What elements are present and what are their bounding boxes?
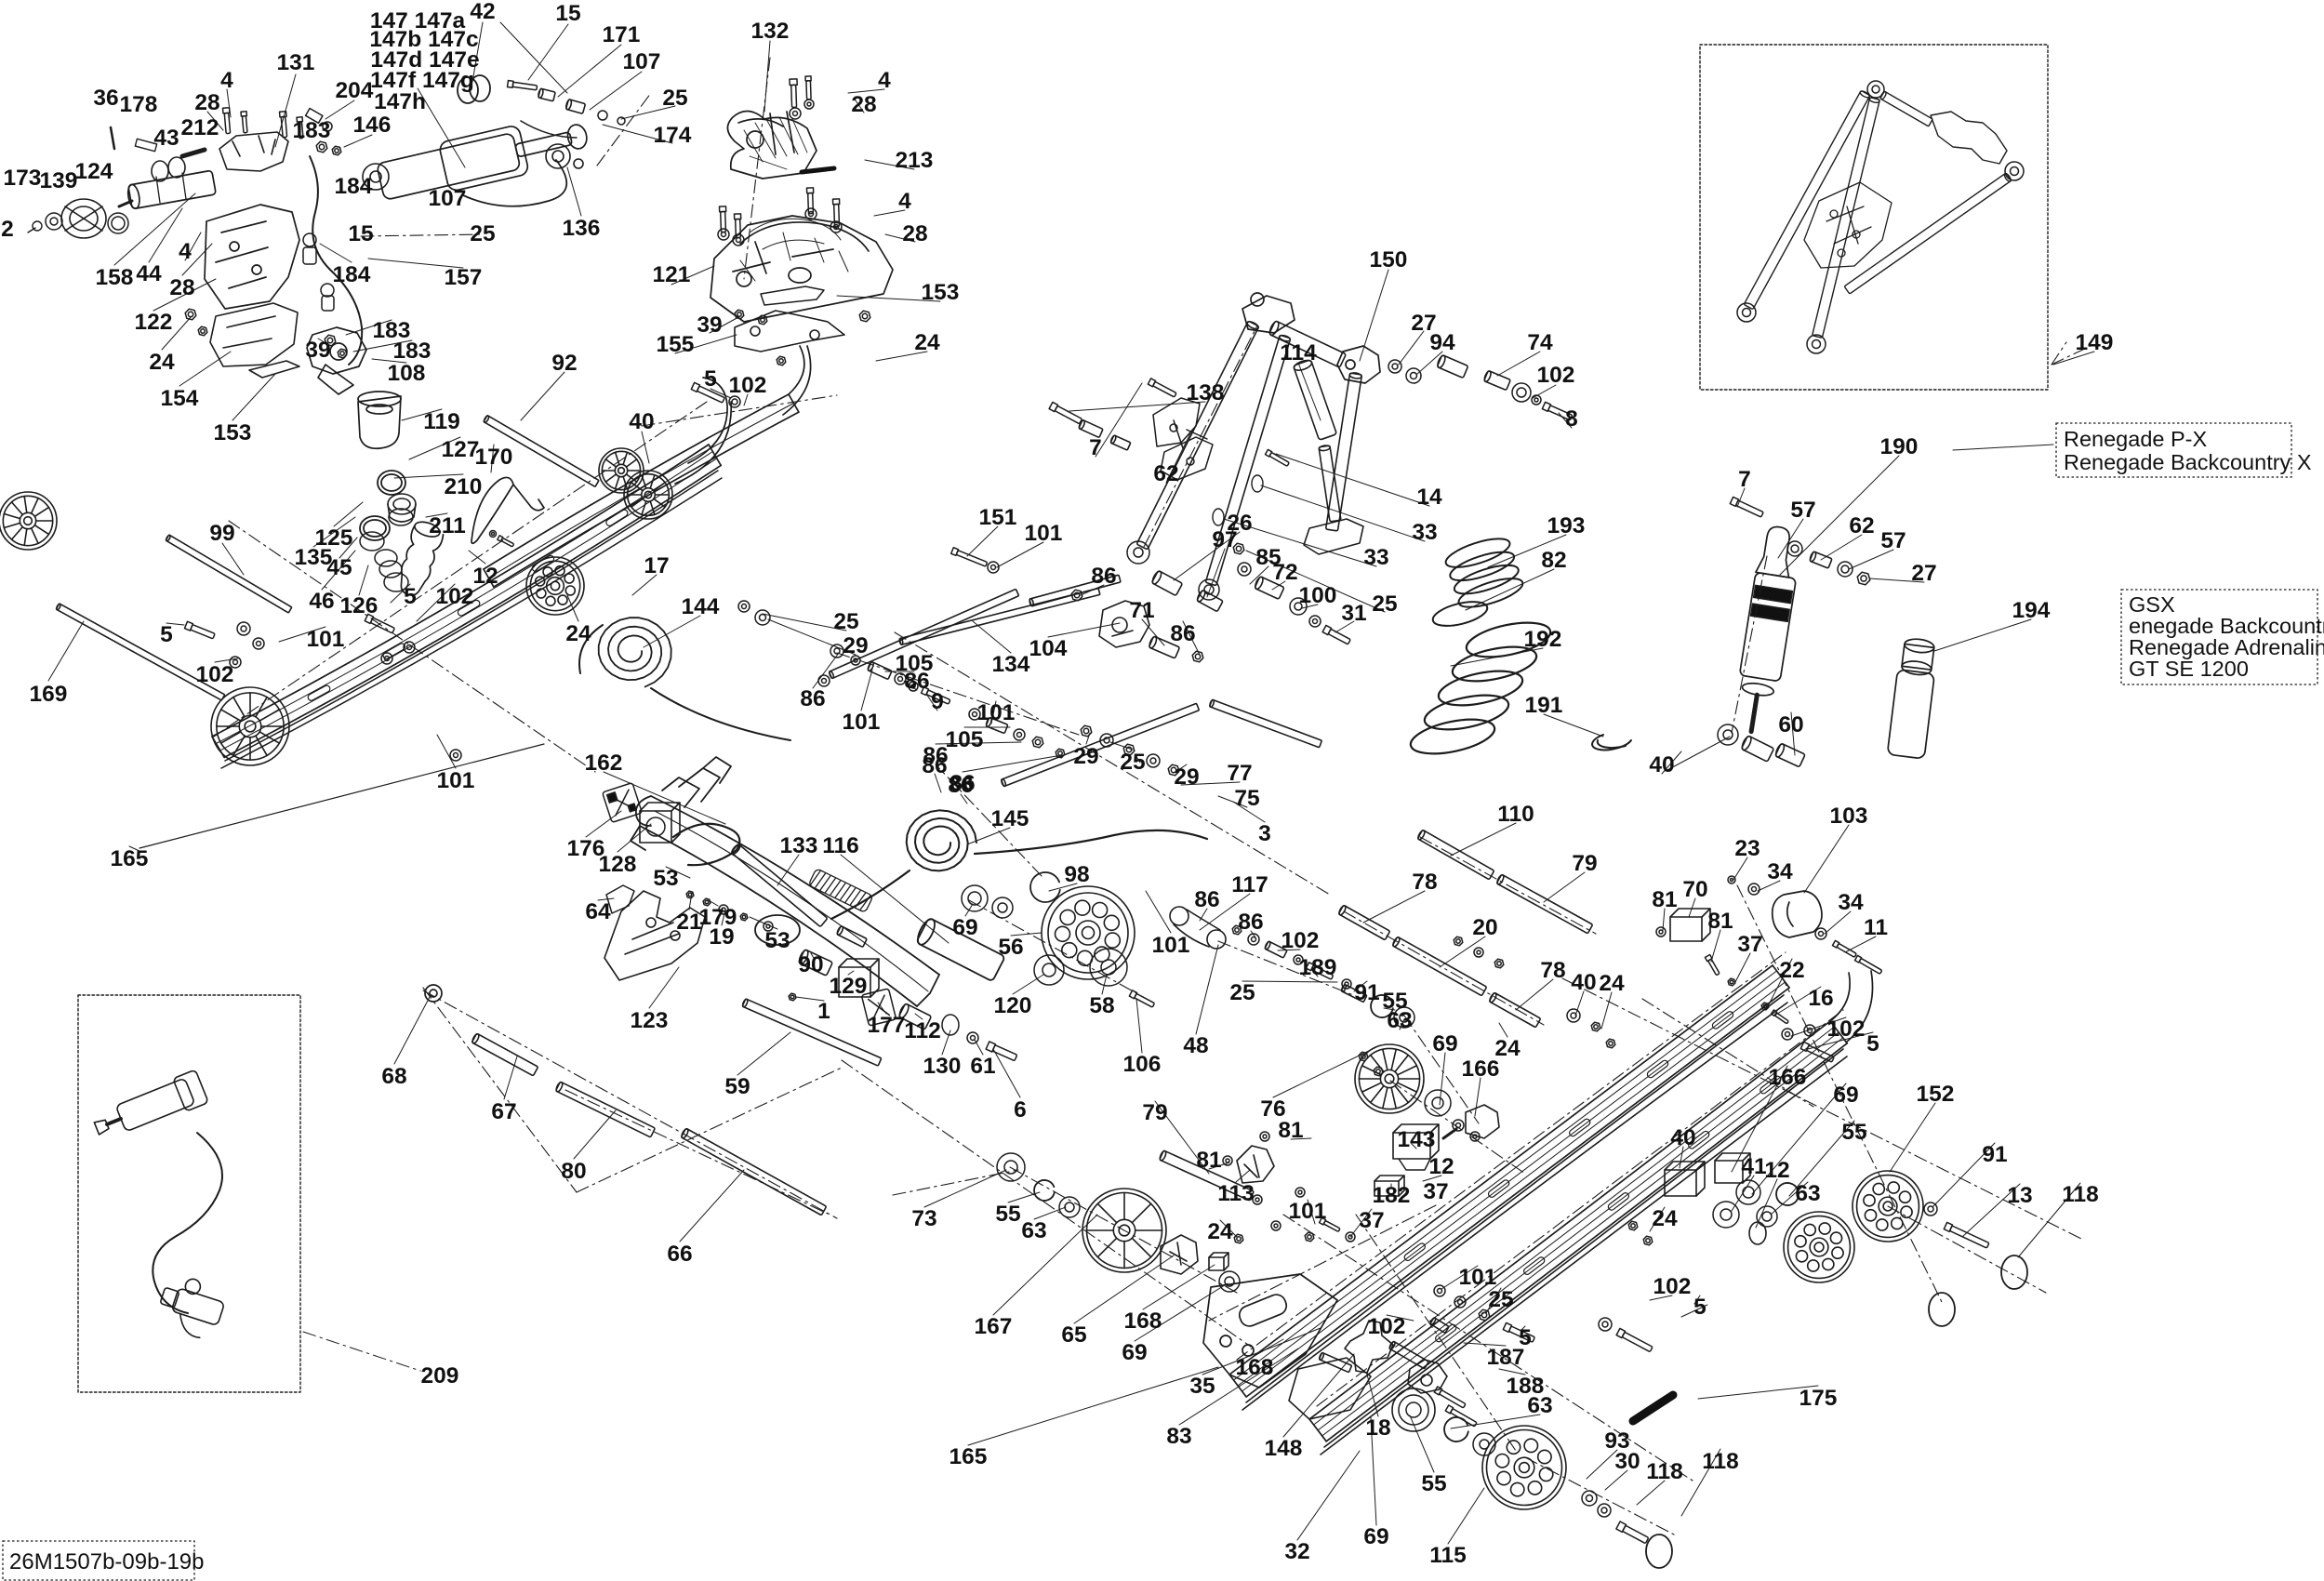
svg-text:90: 90 [798, 952, 823, 977]
svg-text:126: 126 [340, 593, 378, 618]
svg-text:171: 171 [603, 22, 641, 47]
svg-text:192: 192 [1524, 627, 1562, 652]
svg-text:69: 69 [1363, 1524, 1388, 1549]
svg-text:15: 15 [348, 221, 373, 246]
svg-text:5: 5 [404, 584, 417, 609]
svg-text:98: 98 [1064, 862, 1089, 887]
svg-text:97: 97 [1212, 527, 1237, 552]
svg-text:4: 4 [179, 239, 192, 264]
svg-text:146: 146 [353, 113, 392, 138]
svg-text:55: 55 [1841, 1120, 1866, 1145]
svg-text:183: 183 [393, 339, 432, 364]
svg-text:31: 31 [1341, 601, 1366, 626]
svg-text:169: 169 [30, 682, 68, 707]
svg-text:130: 130 [923, 1054, 962, 1079]
svg-text:190: 190 [1880, 434, 1919, 459]
svg-text:81: 81 [1652, 887, 1677, 912]
svg-text:86: 86 [800, 686, 825, 711]
svg-text:53: 53 [764, 928, 790, 953]
svg-text:166: 166 [1462, 1056, 1500, 1082]
svg-text:69: 69 [952, 915, 977, 940]
svg-text:25: 25 [470, 221, 495, 246]
svg-text:168: 168 [1236, 1355, 1274, 1380]
svg-text:86: 86 [904, 669, 929, 694]
svg-text:187: 187 [1487, 1345, 1525, 1370]
svg-text:25: 25 [833, 609, 858, 634]
svg-text:78: 78 [1540, 958, 1565, 983]
svg-text:35: 35 [1189, 1374, 1215, 1399]
svg-text:25: 25 [662, 86, 687, 111]
svg-text:3: 3 [1258, 821, 1271, 846]
svg-text:26M1507b-09b-19b: 26M1507b-09b-19b [9, 1549, 205, 1574]
svg-text:147h: 147h [374, 89, 426, 114]
svg-text:29: 29 [843, 633, 868, 658]
svg-text:77: 77 [1227, 761, 1252, 786]
svg-text:40: 40 [629, 409, 654, 434]
svg-text:177: 177 [868, 1013, 906, 1038]
svg-text:143: 143 [1398, 1127, 1436, 1152]
svg-text:33: 33 [1363, 545, 1388, 570]
svg-text:178: 178 [120, 92, 158, 117]
svg-text:29: 29 [1073, 744, 1098, 769]
svg-text:83: 83 [1166, 1424, 1191, 1449]
svg-text:99: 99 [209, 521, 234, 546]
svg-text:151: 151 [979, 505, 1017, 530]
svg-text:167: 167 [975, 1314, 1013, 1339]
svg-text:Renegade Backcountry X: Renegade Backcountry X [2064, 450, 2312, 474]
svg-text:68: 68 [381, 1064, 406, 1089]
svg-text:13: 13 [2007, 1183, 2032, 1208]
svg-text:37: 37 [1359, 1208, 1384, 1233]
svg-text:101: 101 [1459, 1265, 1497, 1290]
svg-text:28: 28 [902, 221, 927, 246]
svg-text:12: 12 [1428, 1154, 1454, 1179]
svg-text:154: 154 [161, 386, 199, 411]
svg-text:61: 61 [970, 1054, 995, 1079]
svg-text:78: 78 [1412, 870, 1437, 895]
svg-text:37: 37 [1737, 932, 1762, 957]
svg-text:39: 39 [697, 312, 722, 338]
svg-text:60: 60 [1778, 712, 1803, 737]
svg-text:102: 102 [1537, 363, 1575, 388]
svg-text:22: 22 [1779, 958, 1804, 983]
svg-text:4: 4 [898, 189, 911, 214]
svg-text:17: 17 [644, 553, 669, 578]
svg-text:91: 91 [1354, 980, 1379, 1005]
svg-text:40: 40 [1670, 1125, 1695, 1150]
svg-text:158: 158 [96, 265, 134, 290]
svg-text:194: 194 [2012, 598, 2051, 623]
svg-text:45: 45 [326, 555, 352, 580]
svg-text:81: 81 [1278, 1118, 1303, 1143]
svg-text:29: 29 [1174, 764, 1199, 790]
svg-text:102: 102 [436, 584, 474, 609]
svg-text:15: 15 [555, 1, 580, 26]
svg-text:168: 168 [1124, 1309, 1162, 1334]
svg-text:65: 65 [1061, 1322, 1086, 1348]
svg-text:112: 112 [904, 1018, 941, 1043]
svg-text:40: 40 [1649, 752, 1674, 777]
svg-text:155: 155 [657, 332, 695, 357]
svg-text:188: 188 [1507, 1374, 1545, 1399]
svg-text:34: 34 [1767, 859, 1793, 884]
svg-text:63: 63 [1795, 1181, 1820, 1206]
svg-text:102: 102 [196, 662, 234, 687]
svg-text:118: 118 [1646, 1459, 1683, 1484]
svg-text:20: 20 [1472, 915, 1497, 940]
svg-text:92: 92 [551, 351, 577, 376]
svg-text:14: 14 [1416, 485, 1442, 510]
svg-text:86: 86 [922, 753, 947, 778]
svg-text:5: 5 [704, 366, 717, 392]
svg-text:1: 1 [817, 999, 830, 1024]
svg-text:173: 173 [4, 166, 42, 191]
svg-text:63: 63 [1387, 1008, 1412, 1033]
svg-text:165: 165 [950, 1444, 988, 1469]
svg-text:42: 42 [470, 0, 495, 24]
svg-text:5: 5 [160, 622, 173, 647]
svg-text:107: 107 [429, 186, 467, 211]
svg-text:11: 11 [1864, 915, 1888, 940]
svg-text:119: 119 [423, 409, 460, 434]
svg-text:102: 102 [1282, 928, 1320, 953]
svg-text:7: 7 [1089, 435, 1102, 460]
svg-text:86: 86 [948, 773, 973, 798]
svg-text:63: 63 [1021, 1218, 1046, 1243]
svg-text:82: 82 [1541, 548, 1566, 573]
svg-text:184: 184 [333, 262, 371, 287]
svg-text:157: 157 [445, 265, 483, 290]
svg-text:115: 115 [1429, 1543, 1467, 1568]
svg-text:100: 100 [1299, 583, 1337, 608]
svg-text:175: 175 [1799, 1386, 1838, 1411]
svg-text:150: 150 [1370, 247, 1408, 272]
svg-text:37: 37 [1423, 1179, 1448, 1204]
svg-text:108: 108 [388, 361, 426, 386]
svg-text:21: 21 [676, 910, 701, 935]
svg-text:24: 24 [1652, 1206, 1678, 1231]
svg-text:129: 129 [830, 974, 868, 999]
svg-text:69: 69 [1833, 1083, 1858, 1108]
svg-text:118: 118 [1702, 1449, 1739, 1474]
svg-text:86: 86 [1091, 564, 1116, 589]
svg-text:101: 101 [843, 710, 881, 735]
svg-text:27: 27 [1911, 561, 1936, 586]
svg-text:75: 75 [1234, 786, 1259, 811]
svg-text:183: 183 [293, 118, 331, 143]
svg-text:58: 58 [1089, 993, 1114, 1018]
svg-text:57: 57 [1790, 498, 1815, 523]
svg-text:101: 101 [1025, 521, 1063, 546]
svg-text:191: 191 [1525, 693, 1563, 718]
svg-text:32: 32 [1284, 1539, 1309, 1564]
svg-text:28: 28 [194, 90, 219, 115]
svg-text:193: 193 [1547, 513, 1586, 538]
svg-text:25: 25 [1372, 591, 1397, 617]
svg-text:53: 53 [653, 866, 678, 891]
svg-text:122: 122 [135, 310, 173, 335]
svg-text:59: 59 [724, 1074, 750, 1099]
svg-text:86: 86 [1238, 910, 1263, 935]
svg-text:9: 9 [931, 689, 944, 714]
svg-text:79: 79 [1142, 1100, 1167, 1125]
svg-text:106: 106 [1123, 1052, 1162, 1077]
svg-text:74: 74 [1527, 330, 1553, 355]
svg-text:86: 86 [1194, 887, 1219, 912]
svg-text:189: 189 [1299, 955, 1337, 980]
svg-text:81: 81 [1707, 909, 1733, 934]
svg-text:81: 81 [1196, 1148, 1221, 1173]
svg-text:94: 94 [1429, 330, 1455, 355]
svg-text:23: 23 [1734, 836, 1760, 861]
svg-text:62: 62 [1153, 461, 1178, 486]
svg-text:152: 152 [1917, 1082, 1955, 1107]
svg-text:25: 25 [1229, 980, 1255, 1005]
svg-text:102: 102 [729, 373, 767, 398]
svg-text:79: 79 [1572, 851, 1597, 876]
svg-text:209: 209 [421, 1363, 459, 1388]
svg-text:44: 44 [136, 261, 162, 286]
svg-text:149: 149 [2076, 330, 2114, 355]
svg-text:69: 69 [1122, 1340, 1147, 1365]
svg-text:136: 136 [563, 216, 601, 241]
svg-text:12: 12 [472, 564, 498, 589]
svg-text:19: 19 [709, 924, 734, 950]
svg-text:62: 62 [1849, 513, 1874, 538]
svg-text:40: 40 [1571, 970, 1596, 995]
svg-text:80: 80 [561, 1159, 586, 1184]
svg-text:24: 24 [565, 621, 591, 646]
svg-text:123: 123 [631, 1008, 669, 1033]
svg-text:55: 55 [995, 1202, 1020, 1227]
svg-text:145: 145 [991, 806, 1029, 831]
svg-text:39: 39 [305, 338, 330, 363]
svg-text:30: 30 [1614, 1449, 1640, 1474]
svg-text:204: 204 [336, 78, 374, 103]
svg-text:64: 64 [585, 899, 611, 924]
svg-text:18: 18 [1365, 1415, 1390, 1441]
svg-text:43: 43 [153, 126, 179, 151]
svg-text:165: 165 [111, 846, 149, 871]
svg-text:134: 134 [992, 652, 1030, 677]
svg-text:127: 127 [442, 437, 480, 462]
svg-text:24: 24 [1494, 1036, 1521, 1061]
svg-text:132: 132 [751, 19, 790, 44]
svg-text:4: 4 [220, 68, 233, 93]
svg-text:211: 211 [429, 513, 466, 538]
svg-text:101: 101 [307, 627, 345, 652]
svg-text:213: 213 [896, 148, 934, 173]
svg-text:6: 6 [1014, 1097, 1027, 1123]
svg-text:138: 138 [1187, 380, 1225, 405]
svg-text:8: 8 [1565, 406, 1578, 432]
svg-text:117: 117 [1231, 872, 1268, 897]
svg-text:144: 144 [682, 594, 720, 619]
svg-text:166: 166 [1769, 1065, 1807, 1090]
svg-text:210: 210 [445, 474, 483, 499]
svg-text:5: 5 [1866, 1031, 1879, 1056]
svg-text:57: 57 [1880, 528, 1906, 553]
svg-text:118: 118 [2062, 1182, 2099, 1207]
svg-text:91: 91 [1982, 1142, 2007, 1167]
svg-text:101: 101 [437, 768, 475, 793]
svg-text:73: 73 [911, 1206, 936, 1231]
svg-text:113: 113 [1217, 1181, 1255, 1206]
svg-text:5: 5 [1693, 1295, 1706, 1320]
svg-text:124: 124 [75, 159, 113, 184]
svg-text:Renegade P-X: Renegade P-X [2064, 427, 2207, 451]
svg-text:66: 66 [667, 1242, 692, 1267]
svg-text:86: 86 [1170, 621, 1195, 646]
svg-text:170: 170 [475, 445, 513, 470]
svg-text:12: 12 [1764, 1158, 1789, 1183]
svg-text:153: 153 [214, 420, 252, 445]
svg-text:139: 139 [40, 168, 78, 193]
svg-text:33: 33 [1412, 520, 1437, 545]
svg-text:110: 110 [1497, 802, 1534, 827]
svg-text:24: 24 [149, 350, 175, 375]
svg-text:2: 2 [1, 217, 14, 242]
svg-text:28: 28 [851, 92, 876, 117]
svg-text:70: 70 [1682, 877, 1707, 902]
svg-text:16: 16 [1808, 986, 1833, 1011]
svg-text:148: 148 [1265, 1436, 1303, 1461]
svg-text:24: 24 [1599, 971, 1625, 996]
svg-text:7: 7 [1738, 467, 1751, 492]
svg-text:46: 46 [309, 589, 334, 614]
svg-text:GT SE 1200: GT SE 1200 [2129, 657, 2249, 681]
svg-text:71: 71 [1129, 598, 1154, 623]
svg-text:48: 48 [1183, 1033, 1208, 1058]
svg-text:67: 67 [491, 1099, 516, 1124]
svg-text:69: 69 [1432, 1031, 1457, 1056]
svg-text:41: 41 [1741, 1154, 1766, 1179]
svg-text:102: 102 [1368, 1314, 1406, 1339]
svg-text:116: 116 [822, 833, 859, 858]
svg-text:55: 55 [1421, 1471, 1446, 1496]
svg-text:72: 72 [1272, 560, 1297, 585]
svg-text:121: 121 [653, 262, 691, 287]
svg-text:102: 102 [1827, 1016, 1866, 1042]
svg-text:133: 133 [780, 833, 818, 858]
svg-text:212: 212 [181, 115, 219, 140]
svg-text:102: 102 [1653, 1274, 1692, 1299]
svg-text:114: 114 [1280, 340, 1317, 365]
svg-text:24: 24 [1207, 1219, 1233, 1244]
svg-text:174: 174 [654, 123, 692, 148]
svg-text:131: 131 [277, 50, 315, 75]
svg-text:105: 105 [946, 727, 984, 752]
svg-text:128: 128 [599, 852, 637, 877]
svg-text:4: 4 [878, 68, 891, 93]
svg-text:36: 36 [93, 86, 118, 111]
svg-text:153: 153 [922, 280, 960, 305]
svg-text:107: 107 [623, 49, 661, 74]
svg-text:101: 101 [977, 700, 1016, 725]
svg-text:101: 101 [1152, 933, 1190, 958]
svg-text:182: 182 [1373, 1183, 1411, 1208]
svg-text:104: 104 [1029, 636, 1068, 661]
svg-text:25: 25 [1120, 750, 1145, 775]
svg-text:103: 103 [1830, 804, 1868, 829]
svg-text:34: 34 [1838, 890, 1864, 915]
svg-text:184: 184 [335, 174, 373, 199]
svg-text:25: 25 [1488, 1287, 1513, 1312]
svg-text:24: 24 [914, 330, 940, 355]
svg-text:162: 162 [585, 751, 623, 776]
svg-text:101: 101 [1289, 1199, 1327, 1224]
svg-text:56: 56 [998, 935, 1023, 960]
svg-text:28: 28 [169, 275, 194, 300]
svg-text:120: 120 [994, 993, 1032, 1018]
